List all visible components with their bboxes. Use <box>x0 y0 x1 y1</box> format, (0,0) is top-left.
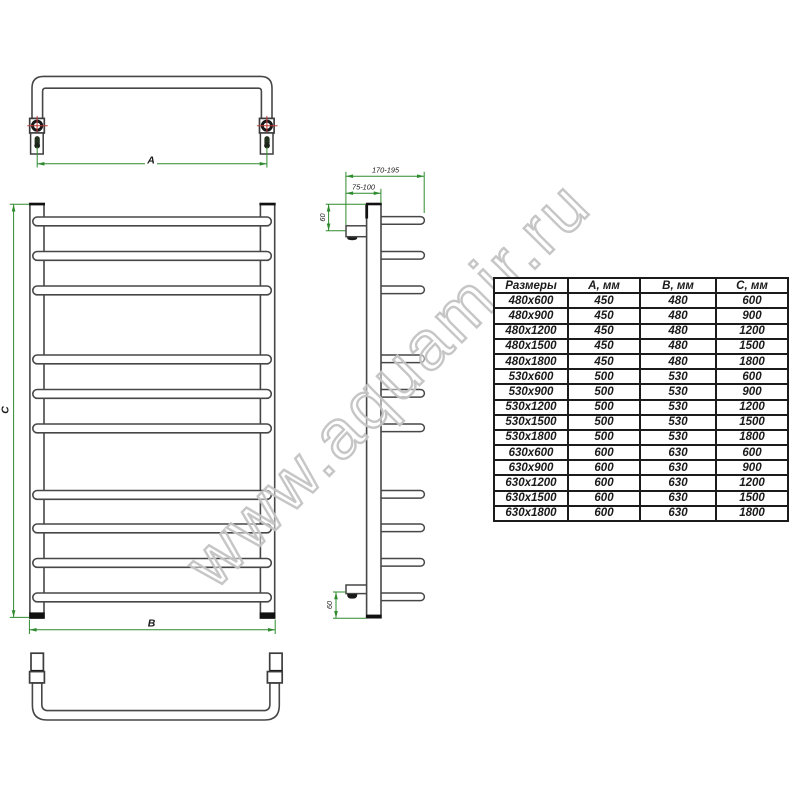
svg-text:B: B <box>148 618 156 630</box>
svg-text:75-100: 75-100 <box>352 183 376 192</box>
svg-text:A: A <box>146 155 155 167</box>
svg-text:60: 60 <box>325 600 334 609</box>
svg-text:170-195: 170-195 <box>372 166 400 175</box>
svg-text:C: C <box>0 406 12 414</box>
svg-text:60: 60 <box>318 213 327 222</box>
